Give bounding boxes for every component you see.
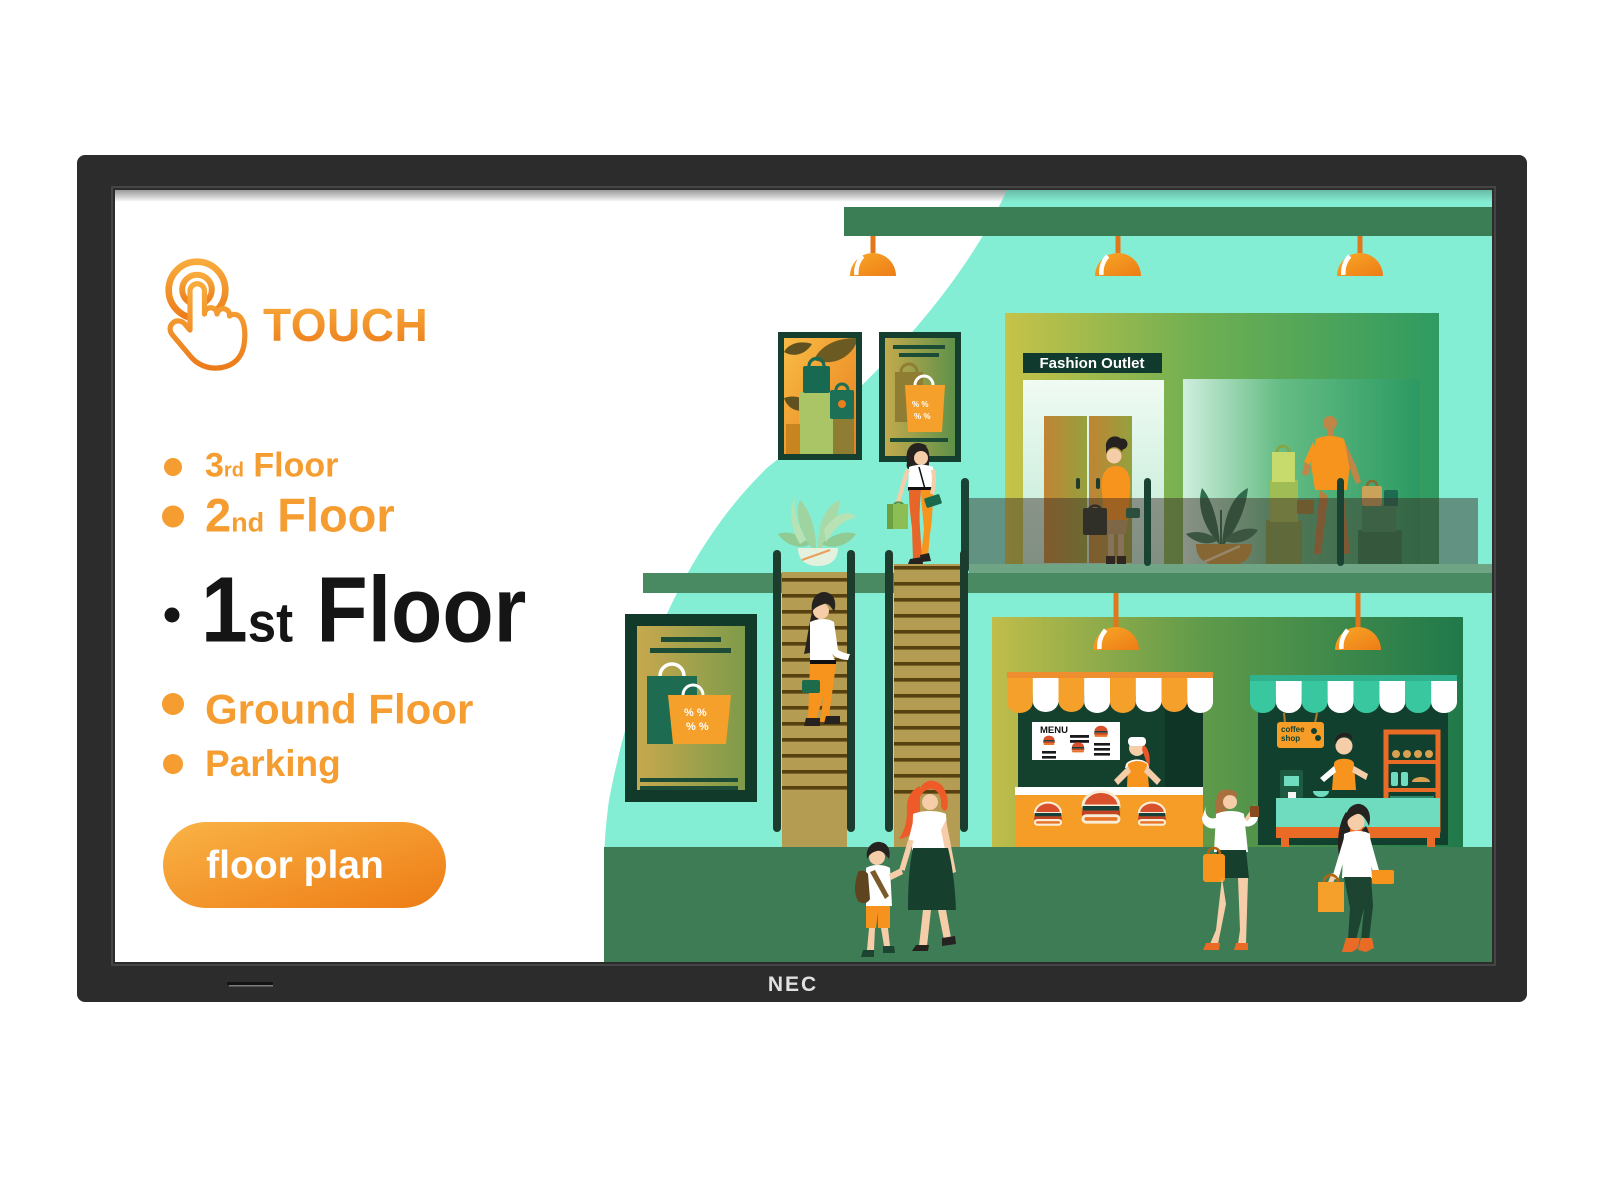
svg-text:shop: shop (1281, 734, 1300, 743)
svg-text:Ground Floor: Ground Floor (205, 686, 473, 733)
svg-text:MENU: MENU (1040, 725, 1068, 736)
svg-text:NEC: NEC (768, 973, 818, 996)
svg-text:Fashion Outlet: Fashion Outlet (1040, 355, 1145, 372)
svg-text:Parking: Parking (205, 743, 341, 784)
svg-text:% %: % % (912, 400, 928, 409)
svg-text:% %: % % (914, 412, 930, 421)
svg-text:TOUCH: TOUCH (263, 299, 428, 351)
svg-text:% %: % % (684, 707, 707, 719)
svg-text:floor plan: floor plan (206, 844, 384, 887)
svg-text:% %: % % (686, 721, 709, 733)
svg-text:coffee: coffee (1281, 725, 1305, 734)
